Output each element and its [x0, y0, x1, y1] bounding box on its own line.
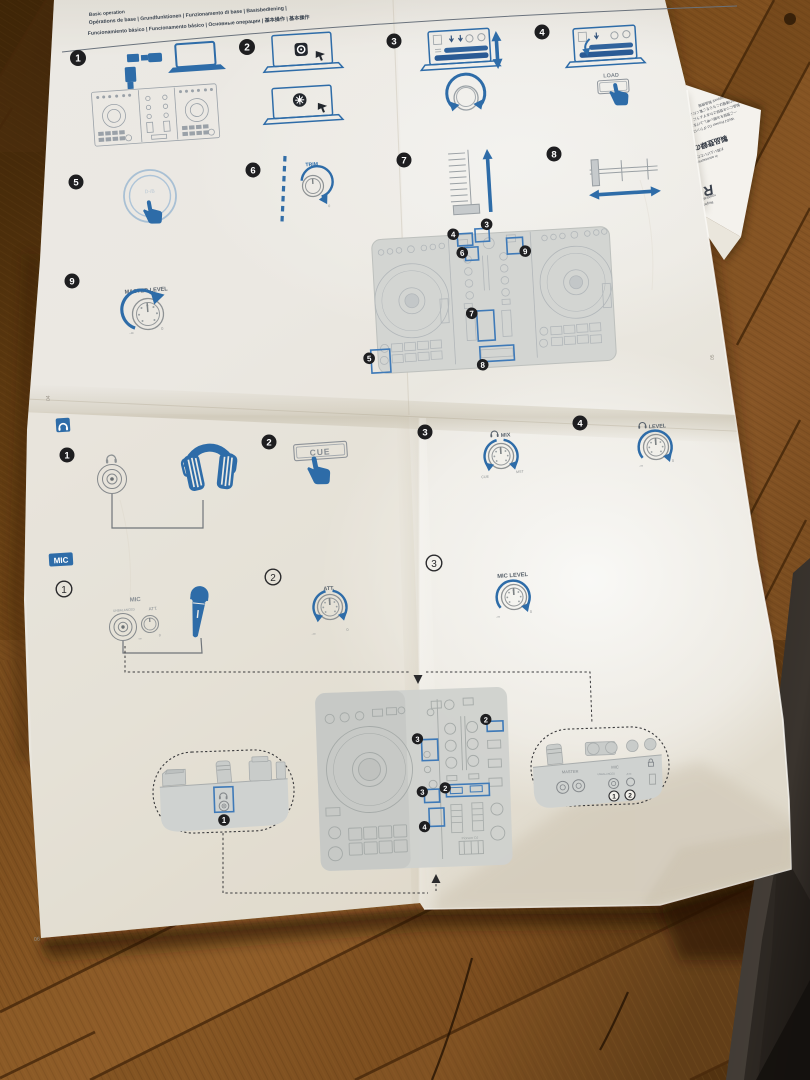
svg-text:2: 2: [628, 793, 632, 800]
svg-text:-∞: -∞: [496, 615, 501, 619]
svg-text:3: 3: [422, 428, 427, 439]
svg-text:06: 06: [34, 937, 41, 943]
svg-text:0: 0: [672, 459, 674, 463]
svg-text:MIX: MIX: [501, 432, 511, 439]
svg-text:0: 0: [530, 610, 532, 614]
svg-text:ATT.: ATT.: [626, 772, 632, 776]
svg-text:-∞: -∞: [312, 632, 317, 636]
svg-text:1: 1: [612, 794, 616, 801]
svg-text:2: 2: [443, 784, 447, 793]
svg-text:0: 0: [328, 204, 330, 208]
svg-text:D-/B: D-/B: [145, 189, 156, 196]
svg-text:1: 1: [61, 585, 67, 596]
svg-text:3: 3: [431, 559, 437, 570]
svg-text:1: 1: [222, 816, 227, 825]
svg-text:0: 0: [346, 628, 348, 632]
svg-text:Pioneer DJ: Pioneer DJ: [462, 836, 479, 841]
svg-text:ATT.: ATT.: [148, 606, 157, 612]
svg-text:8: 8: [551, 150, 556, 161]
svg-text:2: 2: [270, 573, 276, 584]
svg-text:05: 05: [710, 354, 716, 360]
svg-text:MIC: MIC: [611, 764, 619, 769]
svg-text:-∞: -∞: [129, 330, 134, 335]
svg-text:CUE: CUE: [481, 475, 489, 479]
svg-text:6: 6: [250, 166, 255, 177]
svg-text:MST: MST: [516, 470, 525, 475]
svg-text:7: 7: [401, 156, 406, 167]
svg-text:LOAD: LOAD: [603, 73, 619, 80]
svg-text:MIC: MIC: [53, 555, 68, 565]
svg-text:3: 3: [415, 735, 419, 744]
svg-text:2: 2: [266, 438, 271, 449]
svg-text:4: 4: [539, 28, 545, 39]
svg-text:1: 1: [64, 451, 70, 462]
svg-text:UNBALANCED: UNBALANCED: [597, 771, 615, 776]
svg-text:5: 5: [73, 178, 79, 189]
svg-text:-∞: -∞: [639, 464, 644, 468]
svg-text:MIC: MIC: [130, 597, 142, 604]
svg-text:LEVEL: LEVEL: [649, 423, 667, 430]
svg-text:4: 4: [577, 419, 583, 430]
svg-text:CUE: CUE: [309, 446, 331, 457]
svg-text:MASTER: MASTER: [562, 769, 579, 775]
svg-text:2: 2: [484, 715, 488, 724]
svg-text:2: 2: [244, 43, 250, 54]
svg-text:9: 9: [69, 277, 74, 288]
svg-text:3: 3: [391, 37, 396, 48]
svg-text:3: 3: [420, 788, 424, 797]
svg-text:04: 04: [46, 395, 52, 401]
svg-text:1: 1: [75, 54, 81, 65]
